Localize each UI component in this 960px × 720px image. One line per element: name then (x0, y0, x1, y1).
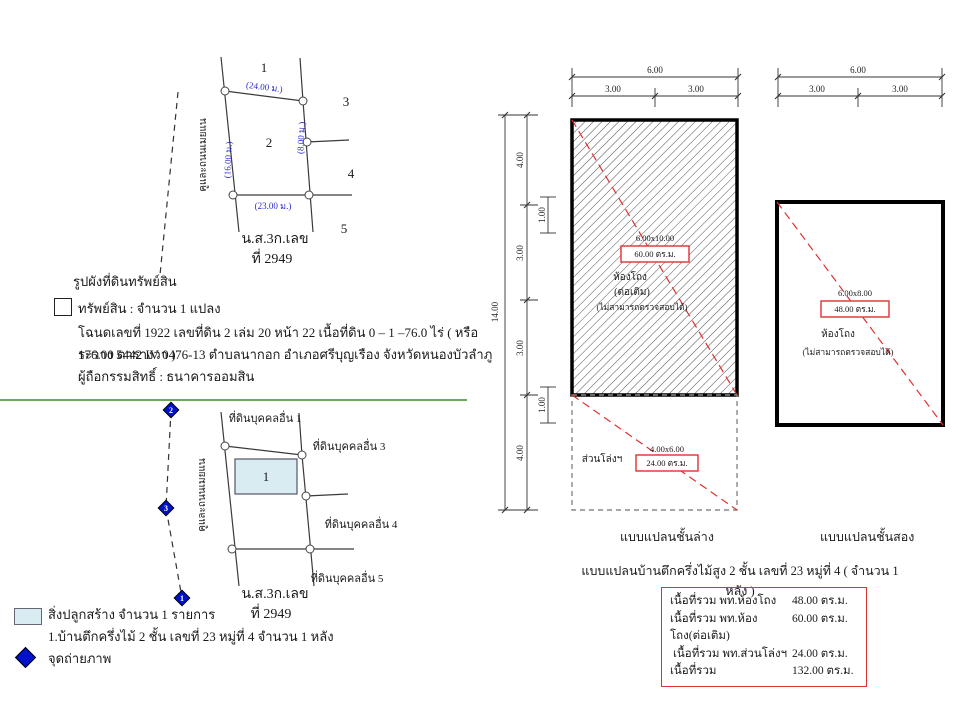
table-row: เนื้อที่รวม 132.00 ตร.ม. (670, 663, 858, 681)
dim-top-total: 6.00 (647, 65, 663, 75)
building-location-sketch: 1 2 3 1 คูและถนนเมยแน ที่ดินบุคคลอื่น 1 … (118, 402, 478, 630)
room-note: (ไม่สามารถตรวจสอบได้) (803, 347, 894, 357)
room-area: 48.00 ตร.ม. (834, 304, 875, 314)
property-info-heading: รูปผังที่ดินทรัพย์สิน (73, 271, 177, 293)
dim-top-left: 3.00 (809, 84, 825, 94)
dim-left: (16.00 ม.) (222, 141, 234, 178)
area-label: เนื้อที่รวม พท.ส่วนโล่งฯ (670, 646, 792, 664)
open-label: ส่วนโล่งฯ (582, 452, 623, 465)
room-size: 6.00x10.00 (636, 233, 674, 243)
room-name: ห้องโถง (821, 327, 855, 340)
dim-right: (8.00 ม.) (295, 122, 307, 155)
svg-text:1: 1 (180, 594, 184, 603)
parcel-3: 3 (343, 94, 350, 109)
checkbox-icon (54, 298, 72, 316)
open-size: 4.00x6.00 (650, 444, 684, 454)
legend-building-label: สิ่งปลูกสร้าง จำนวน 1 รายการ (48, 604, 215, 626)
road-dashed-line (160, 92, 178, 275)
dim-top-right: 3.00 (892, 84, 908, 94)
room-note2: (ไม่สามารถตรวจสอบได้) (597, 302, 688, 312)
dim-left-seg4: 4.00 (515, 445, 525, 461)
area-label: เนื้อที่รวม (670, 663, 792, 681)
second-floor-plan: 6.00 3.00 3.00 6.00x8.00 48.00 ตร.ม. ห้อ… (770, 55, 960, 525)
deed-number-line1: น.ส.3ก.เลข (241, 232, 308, 247)
property-info-line1: ทรัพย์สิน : จำนวน 1 แปลง (78, 298, 221, 320)
area-label: เนื้อที่รวม พท.ห้องโถง (670, 593, 792, 611)
land-plot-sketch: คูและถนนเมยแน (16.00 ม.) (8.00 ม.) (24.0… (118, 30, 478, 280)
deed-number-line1: น.ส.3ก.เลข (241, 587, 308, 602)
room-note1: (ต่อเติม) (614, 287, 650, 298)
open-area-value: 24.00 ตร.ม. (646, 458, 687, 468)
dim-top-left: 3.00 (605, 84, 621, 94)
room-area: 60.00 ตร.ม. (634, 249, 675, 259)
area-value: 24.00 ตร.ม. (792, 646, 858, 664)
neighbor-label-4: ที่ดินบุคคลอื่น 4 (325, 516, 398, 531)
photo-point-3-icon: 3 (158, 500, 174, 516)
dim-bottom: (23.00 ม.) (255, 201, 292, 211)
svg-text:2: 2 (169, 406, 173, 415)
section-divider (0, 399, 467, 401)
deed-number-line2: ที่ 2949 (251, 604, 292, 622)
dim-top-total: 6.00 (850, 65, 866, 75)
dim-left-total: 14.00 (490, 301, 500, 322)
property-info-line3: ระวาง 5442 IV 0476-13 ตำบลนากอก อำเภอศรี… (78, 344, 498, 366)
area-label: เนื้อที่รวม พท.ห้องโถง(ต่อเติม) (670, 611, 792, 646)
table-row: เนื้อที่รวม พท.ห้องโถง(ต่อเติม) 60.00 ตร… (670, 611, 858, 646)
appraisal-document-page: คูและถนนเมยแน (16.00 ม.) (8.00 ม.) (24.0… (0, 0, 960, 720)
legend-building-detail: 1.บ้านตึกครึ่งไม้ 2 ชั้น เลขที่ 23 หมู่ท… (48, 626, 334, 648)
building-number: 1 (263, 469, 270, 484)
dim-inner-top: 1.00 (537, 207, 547, 223)
photo-point-swatch-icon (15, 647, 36, 668)
deed-number-line2: ที่ 2949 (252, 249, 293, 267)
photo-point-2-icon: 2 (163, 402, 179, 418)
dim-top: (24.00 ม.) (246, 80, 284, 94)
dim-left-seg3: 3.00 (515, 340, 525, 356)
area-value: 60.00 ตร.ม. (792, 611, 858, 646)
road-label: คูและถนนเมยแน (198, 118, 209, 192)
legend-photo-label: จุดถ่ายภาพ (48, 648, 111, 670)
area-summary-table: เนื้อที่รวม พท.ห้องโถง 48.00 ตร.ม. เนื้อ… (661, 587, 867, 687)
dim-left-seg2: 3.00 (515, 245, 525, 261)
area-value: 48.00 ตร.ม. (792, 593, 858, 611)
property-info-line4: ผู้ถือกรรมสิทธิ์ : ธนาคารออมสิน (78, 366, 498, 388)
neighbor-label-5: ที่ดินบุคคลอื่น 5 (311, 570, 384, 585)
building-swatch-icon (14, 608, 42, 625)
ground-floor-plan: 6.00 3.00 3.00 14.00 4.00 3.00 3.00 4.00… (490, 55, 755, 525)
parcel-1: 1 (261, 60, 268, 75)
table-row: เนื้อที่รวม พท.ห้องโถง 48.00 ตร.ม. (670, 593, 858, 611)
room-size: 6.00x8.00 (838, 288, 872, 298)
road-label: คูและถนนเมยแน (197, 458, 208, 532)
dim-inner-bottom: 1.00 (537, 397, 547, 413)
neighbor-label-1: ที่ดินบุคคลอื่น 1 (229, 410, 302, 425)
dim-top-right: 3.00 (688, 84, 704, 94)
parcel-5: 5 (341, 221, 348, 236)
ground-plan-title: แบบแปลนชั้นล่าง (620, 527, 714, 547)
parcel-2: 2 (266, 135, 273, 150)
dim-left-seg1: 4.00 (515, 152, 525, 168)
parcel-4: 4 (348, 166, 355, 181)
room-name: ห้องโถง (613, 270, 647, 283)
table-row: เนื้อที่รวม พท.ส่วนโล่งฯ 24.00 ตร.ม. (670, 646, 858, 664)
second-plan-title: แบบแปลนชั้นสอง (820, 527, 914, 547)
neighbor-label-3: ที่ดินบุคคลอื่น 3 (313, 438, 386, 453)
svg-text:3: 3 (164, 504, 168, 513)
area-value: 132.00 ตร.ม. (792, 663, 858, 681)
